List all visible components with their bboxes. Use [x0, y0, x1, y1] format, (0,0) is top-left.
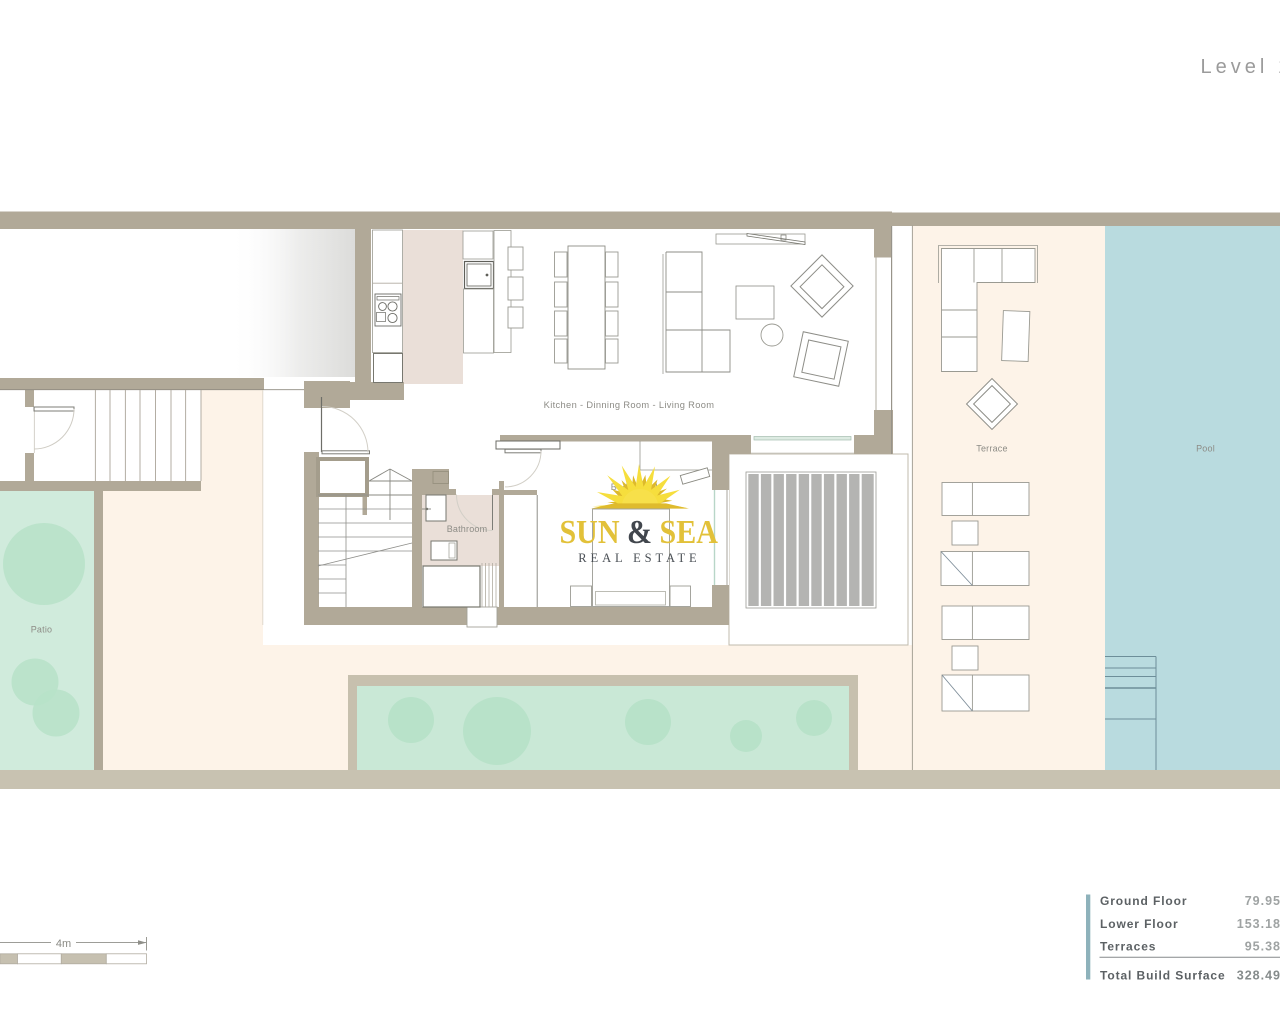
svg-text:REAL ESTATE: REAL ESTATE — [578, 551, 701, 565]
svg-text:Total Build Surface: Total Build Surface — [1100, 968, 1226, 982]
svg-text:328.49: 328.49 — [1237, 968, 1280, 982]
svg-text:Patio: Patio — [31, 625, 53, 635]
svg-text:4m: 4m — [56, 938, 71, 950]
svg-text:79.95: 79.95 — [1245, 894, 1280, 908]
svg-text:95.38: 95.38 — [1245, 940, 1280, 954]
svg-text:153.18: 153.18 — [1237, 917, 1280, 931]
svg-text:Level 1: Level 1 — [1201, 56, 1280, 78]
svg-text:Lower Floor: Lower Floor — [1100, 917, 1179, 931]
svg-text:Kitchen - Dinning Room - Livin: Kitchen - Dinning Room - Living Room — [544, 400, 715, 410]
svg-text:Ground Floor: Ground Floor — [1100, 894, 1187, 908]
svg-text:Pool: Pool — [1196, 444, 1215, 454]
svg-text:SUN & SEA: SUN & SEA — [559, 514, 718, 551]
svg-text:Bathroom: Bathroom — [447, 524, 488, 534]
svg-text:Terraces: Terraces — [1100, 940, 1156, 954]
svg-text:Terrace: Terrace — [976, 444, 1007, 454]
